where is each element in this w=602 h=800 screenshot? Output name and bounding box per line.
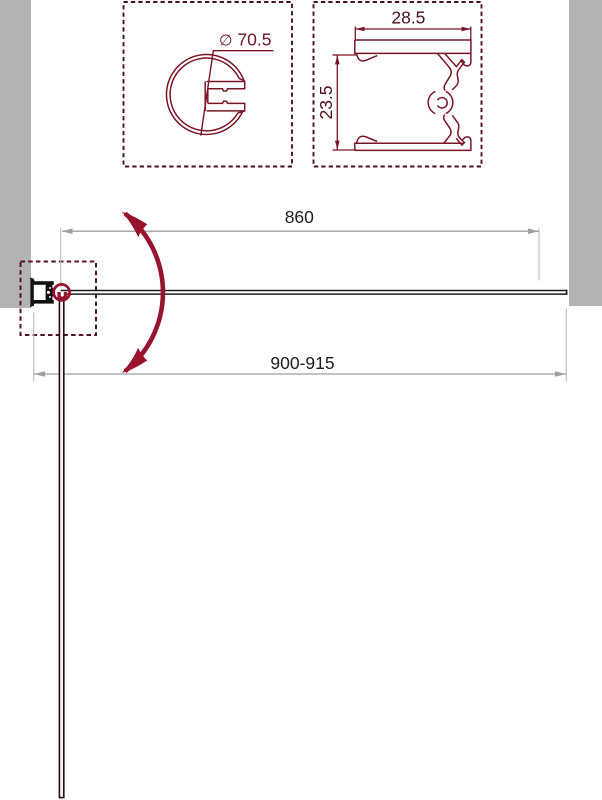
svg-text:28.5: 28.5 [391, 8, 425, 28]
svg-text:∅ 70.5: ∅ 70.5 [219, 29, 271, 49]
svg-text:860: 860 [285, 207, 314, 227]
svg-text:23.5: 23.5 [316, 85, 336, 119]
svg-text:900-915: 900-915 [270, 353, 334, 373]
